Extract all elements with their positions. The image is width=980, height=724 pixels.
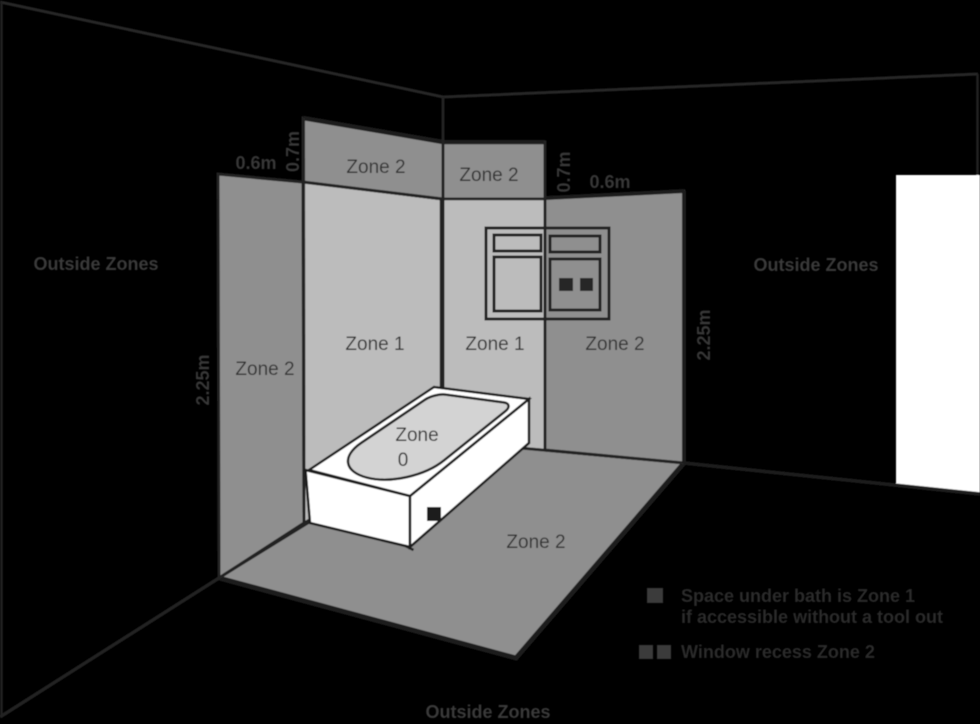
svg-text:0.7m: 0.7m	[554, 151, 574, 192]
svg-text:Outside Zones: Outside Zones	[425, 702, 550, 722]
svg-text:2.25m: 2.25m	[193, 354, 213, 405]
svg-text:0: 0	[398, 450, 409, 471]
svg-text:Zone 1: Zone 1	[345, 334, 404, 355]
svg-text:Zone 1: Zone 1	[465, 334, 524, 355]
svg-text:Outside Zones: Outside Zones	[753, 255, 878, 275]
svg-text:0.7m: 0.7m	[283, 131, 303, 172]
svg-text:Window recess Zone 2: Window recess Zone 2	[681, 642, 875, 662]
svg-text:Outside Zones: Outside Zones	[33, 254, 158, 274]
svg-text:Zone 2: Zone 2	[585, 334, 644, 355]
svg-text:0.6m: 0.6m	[235, 153, 276, 173]
svg-text:2.25m: 2.25m	[694, 309, 714, 360]
svg-text:0.6m: 0.6m	[589, 172, 630, 192]
svg-text:Zone: Zone	[395, 425, 438, 446]
svg-text:Zone 2: Zone 2	[346, 157, 405, 178]
svg-text:Space under bath is Zone 1: Space under bath is Zone 1	[681, 586, 915, 606]
svg-text:Zone 2: Zone 2	[459, 165, 518, 186]
svg-text:Zone 2: Zone 2	[506, 532, 565, 553]
svg-text:if accessible without a tool o: if accessible without a tool out	[681, 607, 943, 627]
svg-text:Zone 2: Zone 2	[235, 359, 294, 380]
